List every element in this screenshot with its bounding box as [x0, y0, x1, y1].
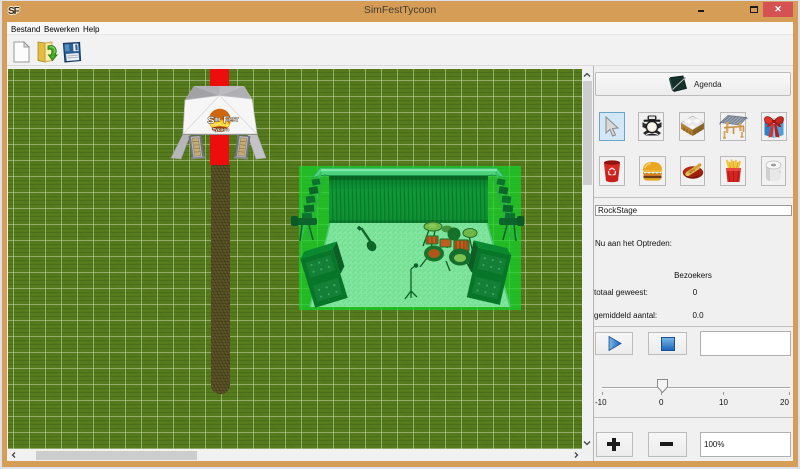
svg-text:S: S: [208, 115, 215, 127]
svg-text:EST: EST: [229, 118, 239, 124]
svg-text:Tycoon: Tycoon: [213, 127, 230, 133]
svg-text:IM: IM: [215, 118, 221, 124]
